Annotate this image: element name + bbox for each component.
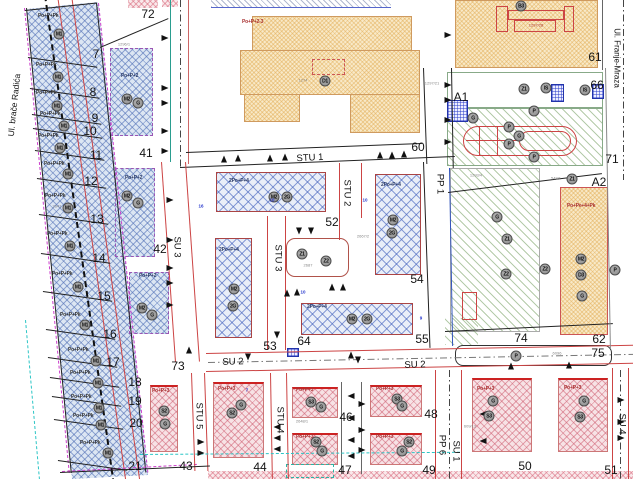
block-number-71: 71 [605,152,618,166]
marker-2g: 2G [228,301,239,312]
street-hatch-top [211,0,391,8]
map-line [100,18,169,48]
direction-arrow-left [348,453,355,459]
existing-building-d1 [244,94,300,122]
cadastral-number: 609/13 [464,424,476,429]
marker-g: G [133,198,144,209]
marker-m1: M1 [103,448,114,459]
map-line [204,373,208,471]
direction-arrow-right [618,435,625,441]
marker-p: P [504,122,515,133]
direction-arrow-right [198,439,205,445]
street-label: SU 4 [617,413,628,434]
zone-label: Po+P+Pk [44,161,64,167]
zone-label: Po+P+Pk [45,193,65,199]
block-number-49: 49 [422,463,435,477]
marker-g: G [397,401,408,412]
block-number-61: 61 [588,50,601,64]
block-number-53: 53 [263,339,276,353]
zone-label: Po+P+2 [125,175,142,181]
marker-p: P [529,106,540,117]
marker-z1: Z1 [567,174,578,185]
cadastral-number: 2687 [304,263,313,268]
map-line [339,163,340,240]
block-number-13: 13 [90,212,103,226]
direction-arrow-right [359,401,366,407]
map-line [341,382,342,474]
marker-z1: Z1 [502,234,513,245]
marker-g: G [577,291,588,302]
marker-g: G [579,396,590,407]
zone-label: Po+P+Pk [38,133,58,139]
block-number-51: 51 [604,463,617,477]
map-line [479,127,480,155]
block-number-15: 15 [97,289,110,303]
block-number-21: 21 [128,459,141,473]
map-line [186,143,422,153]
direction-arrow-right [162,148,169,154]
parcel-outline-teal [286,464,334,478]
cadastral-number: 2641 [53,204,62,209]
marker-m1: M1 [59,121,70,132]
block-number-7: 7 [93,47,100,61]
map-line [188,0,189,164]
zone-label: Po+P+Pk [70,370,90,376]
block-number-72: 72 [141,7,154,21]
marker-p: P [504,139,515,150]
marker-m1: M1 [80,320,91,331]
marker-g: G [397,446,408,457]
parking-loop-inner [519,131,571,151]
zone-label: 2Po+P+4 [229,178,249,184]
direction-arrow-right [167,197,174,203]
marker-m2: M2 [388,215,399,226]
cadastral-number: 1274 [299,78,308,83]
marker-m2: M2 [576,254,587,265]
block-number-50: 50 [518,459,531,473]
dimension-number: 16 [198,204,203,209]
marker-d1: D1 [320,76,331,87]
direction-arrow-left [274,446,281,452]
block-number-12: 12 [84,174,97,188]
marker-m1: M1 [54,29,65,40]
block-number-42: 42 [153,242,166,256]
zone-label: Po+P+2-3 [242,19,263,25]
block-number-17: 17 [106,355,119,369]
direction-arrow-up [221,156,227,163]
map-line [270,373,273,479]
marker-m2: M2 [229,284,240,295]
zone-label: Po+P+2 [139,273,156,279]
direction-arrow-up [284,290,290,297]
marker-2g: 2G [362,314,373,325]
marker-2g: 2G [387,228,398,239]
zone-label: 2Po+P+4 [219,247,239,253]
block-number-75: 75 [591,346,604,360]
direction-arrow-up [348,352,354,359]
street-label: STU 4 [275,407,286,434]
marker-m2: M2 [122,94,133,105]
block-number-66: 66 [590,78,603,92]
block-number-47: 47 [338,463,351,477]
existing-building-d1 [350,94,420,133]
map-line [423,162,430,348]
block-number-64: 64 [297,334,310,348]
marker-z2: Z2 [501,269,512,280]
marker-is: IS [580,85,591,96]
direction-arrow-up [508,363,514,370]
existing-building-outline [508,10,564,20]
street-label: SU 3 [172,236,183,257]
marker-g: G [468,113,479,124]
direction-arrow-up [329,284,335,291]
map-line [497,127,498,155]
zone-label: Po+P+3 [477,386,494,392]
block-number-46: 46 [339,410,352,424]
marker-z1: Z1 [519,84,530,95]
map-line [170,0,171,162]
marker-s2: S2 [227,408,238,419]
transformer-station [551,84,564,102]
cadastral-number: 1297/28 [529,23,543,28]
zone-label: Po+P+3 [218,386,235,392]
direction-arrow-left [274,435,281,441]
dimension-number: 10 [300,290,305,295]
planned-building-2po-p-4 [375,174,421,275]
planned-building-po-p-3 [213,382,264,458]
marker-g: G [160,419,171,430]
cadastral-number: 2667/2 [357,234,369,239]
street-label: Ul. brače Radića [6,73,23,137]
map-line [623,0,624,180]
marker-s3: S3 [575,412,586,423]
direction-arrow-down [308,228,314,235]
map-line [185,162,200,362]
zone-label: Po+P+Pk [52,271,72,277]
marker-m2: M2 [347,314,358,325]
cadastral-number: 2648/1 [296,419,308,424]
direction-arrow-up [267,155,273,162]
marker-z1: Z1 [297,249,308,260]
block-number-A1: A1 [454,90,469,104]
street-label: Ul. Franje-Mraza [613,28,622,88]
direction-arrow-right [445,97,452,103]
cadastral-number: 1297/21 [425,81,439,86]
zone-label: Po+P+Pk [47,231,67,237]
map-line [628,368,629,479]
direction-arrow-up [282,154,288,161]
marker-g: G [316,402,327,413]
dimension-number: 9 [420,316,423,321]
dimension-number: 10 [269,198,274,203]
street-label: SU 2 [222,356,243,368]
block-number-43: 43 [179,459,192,473]
block-number-9: 9 [92,111,99,125]
transformer-station [287,348,299,357]
zone-label: Po+P+Pk [60,312,80,318]
marker-m1: M1 [65,241,76,252]
green-area-z [286,238,349,277]
marker-m1: M1 [52,101,63,112]
marker-s2: S2 [159,406,170,417]
direction-arrow-right [445,139,452,145]
marker-m1: M1 [96,420,107,431]
direction-arrow-right [167,280,174,286]
marker-g: G [147,310,158,321]
map-line [180,0,181,168]
marker-z2: Z2 [540,264,551,275]
marker-g: G [514,131,525,142]
block-number-20: 20 [129,416,142,430]
direction-arrow-right [445,117,452,123]
block-number-A2: A2 [592,175,607,189]
cadastral-number: 549/1 [551,176,561,181]
block-number-60: 60 [411,140,424,154]
zone-label: Po+P+3 [296,387,313,393]
block-number-48: 48 [424,407,437,421]
map-line [461,370,462,479]
marker-m1: M1 [53,72,64,83]
street-label: STU 3 [273,245,284,272]
block-number-19: 19 [128,394,141,408]
marker-m1: M1 [55,143,66,154]
map-line [602,0,603,70]
map-line [285,216,286,350]
marker-s3: S3 [484,411,495,422]
direction-arrow-up [340,284,346,291]
cadastral-number: 1293/4 [470,173,482,178]
direction-arrow-right [618,397,625,403]
street-label: PP 6 [437,435,448,455]
direction-arrow-right [445,32,452,38]
existing-building-outline [564,6,574,32]
block-number-8: 8 [90,85,97,99]
street-label: SU 1 [451,440,462,461]
street-label: STU 1 [296,152,323,164]
cadastral-number: 1296/1 [118,42,130,47]
marker-g: G [492,212,503,223]
block-number-52: 52 [325,215,338,229]
marker-m1: M1 [63,169,74,180]
cadastral-number: 6096 [553,351,562,356]
direction-arrow-down [296,228,302,235]
marker-m1: M1 [63,203,74,214]
direction-arrow-up [377,152,383,159]
direction-arrow-left [480,438,487,444]
dimension-number: 7 [246,388,249,393]
existing-building-d1 [252,16,412,51]
marker-m2: M2 [137,303,148,314]
zone-label: Po+P+Pk [73,413,93,419]
block-number-62: 62 [592,332,605,346]
map-line [361,163,362,218]
block-number-18: 18 [128,375,141,389]
zone-label: Po+Pe+4+Pk [567,203,595,209]
direction-arrow-up [566,362,572,369]
marker-g: G [133,98,144,109]
direction-arrow-right [167,265,174,271]
existing-building-outline [496,6,508,32]
zone-label: Po+P+Pk [80,440,100,446]
direction-arrow-down [355,357,361,364]
zone-label: Po+P+Pk [36,90,56,96]
marker-m1: M1 [94,403,105,414]
marker-b3: B3 [516,1,527,12]
zone-label: Po+P+2 [121,73,138,79]
urban-plan-map[interactable]: M1M1M1M1M1M1M1M1M1M1M1M1M1M1M1M2GM2GM2GM… [0,0,633,479]
direction-arrow-up [294,289,300,296]
direction-arrow-right [167,302,174,308]
marker-d3: D3 [576,270,587,281]
zone-label: 2Po+P+4 [307,304,327,310]
direction-arrow-down [245,354,251,361]
marker-m2: M2 [122,191,133,202]
zone-label: Po+P+3 [152,388,169,394]
zone-label: Po+P+3 [376,386,393,392]
zone-label: Po+P+Pk [71,394,91,400]
zone-label: Po+P+Pk [38,13,58,19]
marker-p: P [610,265,621,276]
direction-arrow-up [235,155,241,162]
direction-arrow-right [198,450,205,456]
zone-label: 2Po+P+4 [381,182,401,188]
utility-rect [462,292,477,320]
street-label: STU 5 [194,403,205,430]
direction-arrow-right [445,82,452,88]
zone-label: Po+P+3 [376,434,393,440]
direction-arrow-up [401,151,407,158]
marker-2g: 2G [282,192,293,203]
map-line [267,216,268,350]
marker-p: P [511,351,522,362]
block-number-10: 10 [83,124,96,138]
direction-arrow-right [162,100,169,106]
marker-g: G [488,396,499,407]
block-number-11: 11 [90,148,102,162]
direction-arrow-down [274,332,280,339]
map-line [25,320,40,479]
zone-po-p-2-c [129,272,169,334]
courtyard-outline [312,59,345,75]
direction-arrow-right [162,85,169,91]
block-number-55: 55 [415,332,428,346]
street-label: STU 2 [342,180,353,207]
zone-label: Po+P+3 [296,434,313,440]
direction-arrow-right [162,35,169,41]
direction-arrow-right [162,128,169,134]
street-label: SU 2 [404,359,425,371]
marker-m1: M1 [91,356,102,367]
map-line [449,370,450,479]
zone-label: Po+P+Pk [36,62,56,68]
street-label: PP 1 [435,174,446,194]
direction-arrow-up [389,152,395,159]
zone-label: Po+P+Pk [40,111,60,117]
block-number-16: 16 [103,327,116,341]
marker-g: G [236,400,247,411]
zone-label: Po+P+Pk [68,347,88,353]
zone-po-p-2-a [110,48,153,136]
marker-m1: M1 [93,378,104,389]
block-number-74: 74 [514,331,527,345]
block-number-44: 44 [253,460,266,474]
block-number-41: 41 [139,146,152,160]
zone-label: Po+P+3 [564,385,581,391]
direction-arrow-right [359,427,366,433]
block-number-73: 73 [171,359,184,373]
direction-arrow-left [348,437,355,443]
direction-arrow-up [186,347,192,354]
block-number-54: 54 [410,272,423,286]
dimension-number: 10 [362,198,367,203]
block-number-14: 14 [92,251,105,265]
marker-z2: Z2 [321,256,332,267]
marker-g: G [317,446,328,457]
direction-arrow-left [348,393,355,399]
marker-m1: M1 [73,282,84,293]
marker-is: IS [541,83,552,94]
direction-arrow-right [359,447,366,453]
marker-p: P [529,152,540,163]
